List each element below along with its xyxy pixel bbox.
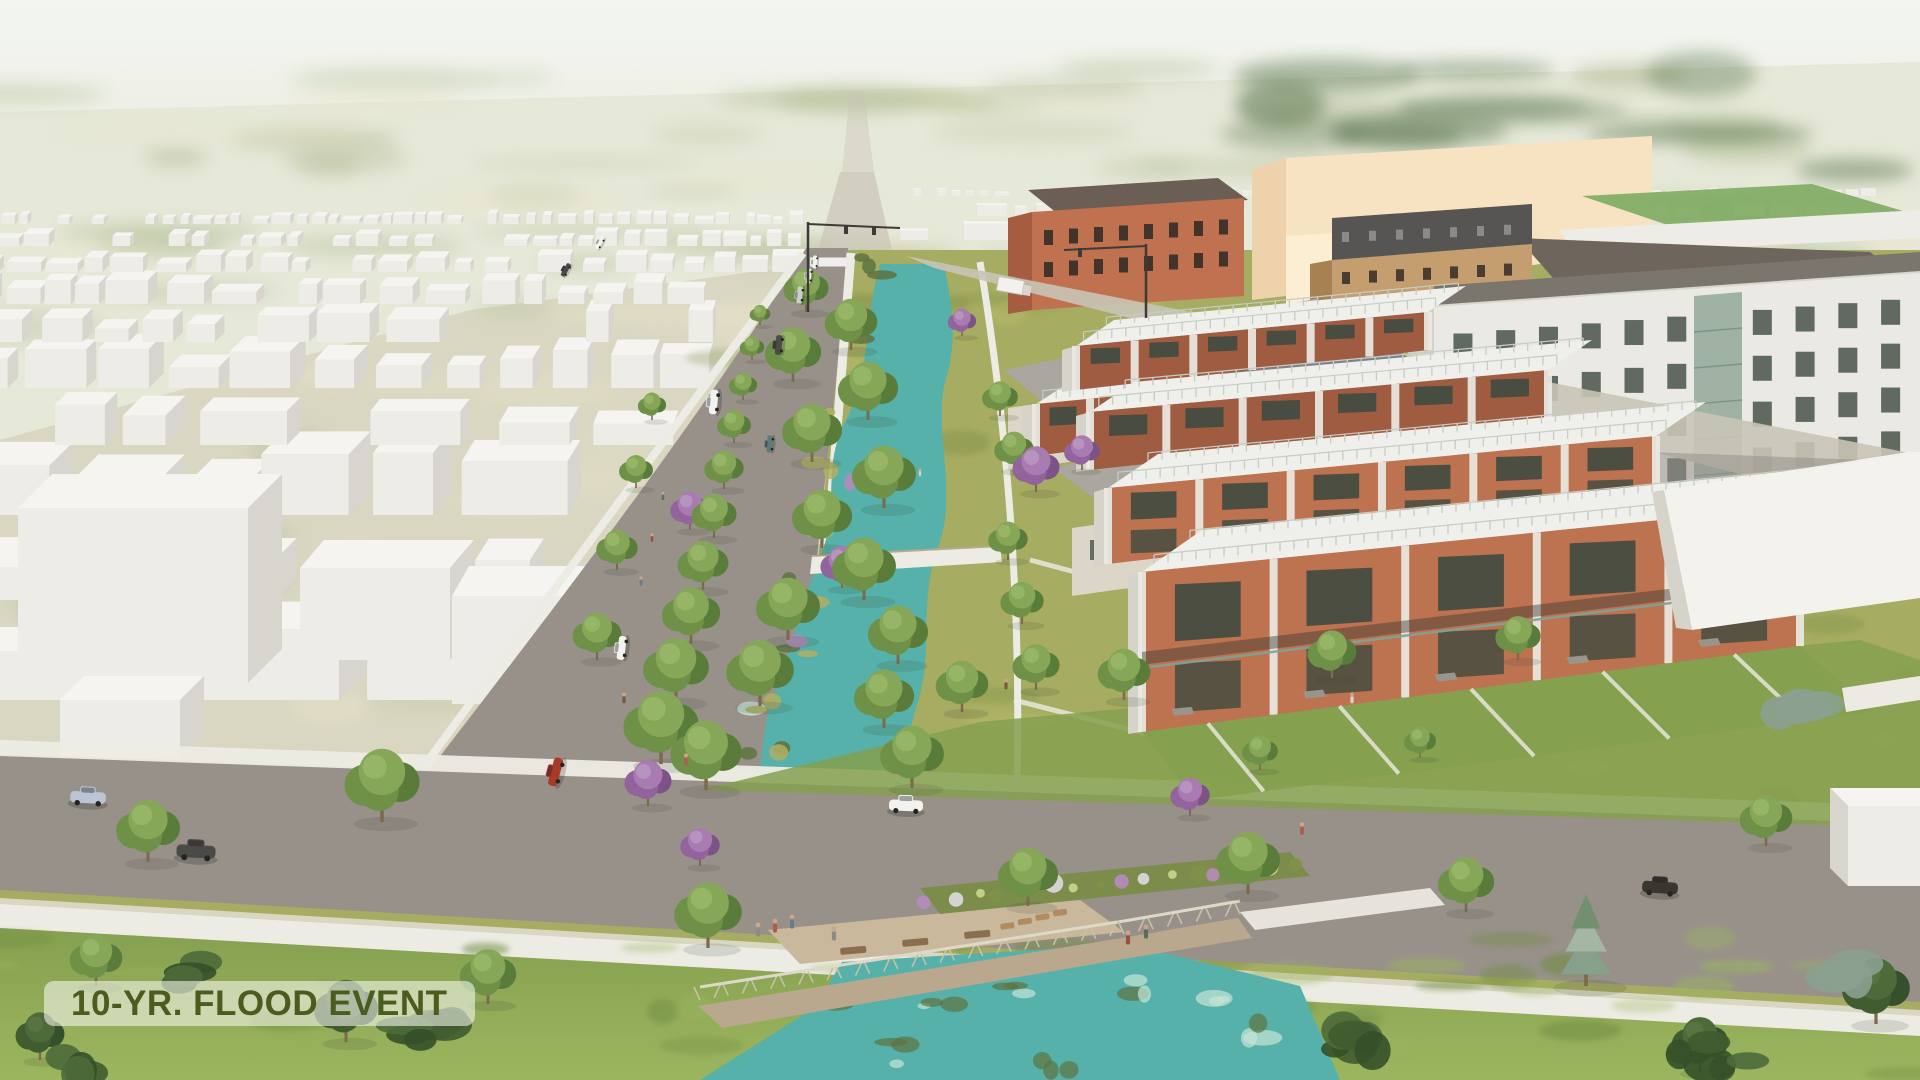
rendering-scene [0,0,1920,1080]
flood-rendering-view: 10-YR. FLOOD EVENT [0,0,1920,1080]
flood-event-label-text: 10-YR. FLOOD EVENT [71,984,448,1024]
flood-event-label: 10-YR. FLOOD EVENT [44,981,475,1026]
